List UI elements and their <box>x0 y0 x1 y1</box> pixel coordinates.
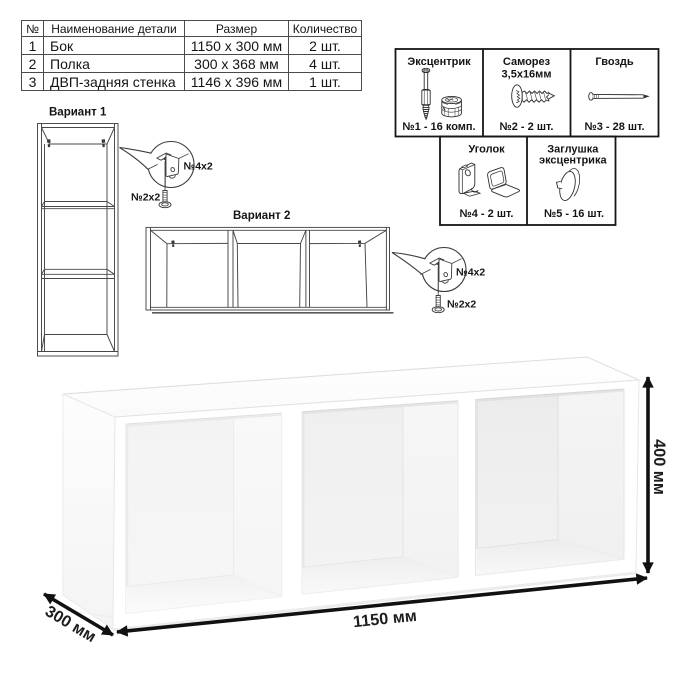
svg-text:№4 - 2 шт.: №4 - 2 шт. <box>460 208 514 220</box>
svg-text:Саморез: Саморез <box>503 56 551 68</box>
svg-text:1150 мм: 1150 мм <box>352 607 417 631</box>
svg-text:№3 - 28 шт.: №3 - 28 шт. <box>584 121 644 133</box>
svg-text:Уголок: Уголок <box>468 144 505 156</box>
svg-text:400 мм: 400 мм <box>650 439 668 495</box>
svg-text:№5 - 16 шт.: №5 - 16 шт. <box>544 208 604 220</box>
svg-text:№2 - 2 шт.: №2 - 2 шт. <box>500 121 554 133</box>
svg-text:№2х2: №2х2 <box>447 299 476 311</box>
svg-text:Эксцентрик: Эксцентрик <box>407 56 471 68</box>
svg-text:№4х2: №4х2 <box>184 161 213 173</box>
svg-text:№4х2: №4х2 <box>456 267 485 279</box>
svg-text:№1 - 16 комп.: №1 - 16 комп. <box>402 121 475 133</box>
svg-text:эксцентрика: эксцентрика <box>539 155 607 167</box>
svg-text:№2х2: №2х2 <box>131 192 160 204</box>
svg-text:Вариант 1: Вариант 1 <box>49 107 107 119</box>
svg-text:3,5х16мм: 3,5х16мм <box>502 69 552 81</box>
svg-text:Вариант 2: Вариант 2 <box>233 210 290 222</box>
svg-text:Гвоздь: Гвоздь <box>595 56 634 68</box>
